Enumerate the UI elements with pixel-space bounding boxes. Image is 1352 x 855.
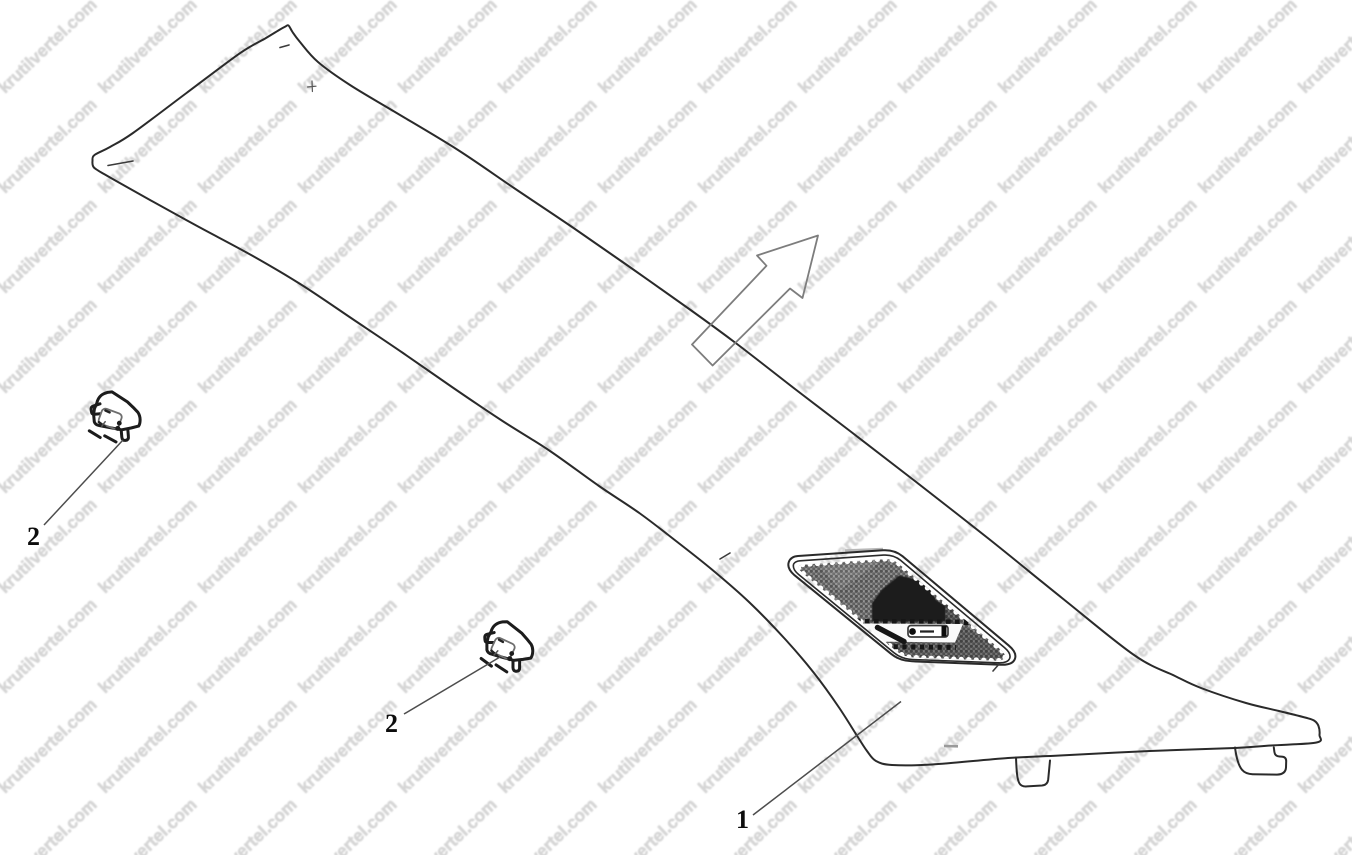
svg-text:1: 1: [736, 805, 749, 834]
svg-text:2: 2: [385, 709, 398, 738]
svg-text:2: 2: [27, 522, 40, 551]
